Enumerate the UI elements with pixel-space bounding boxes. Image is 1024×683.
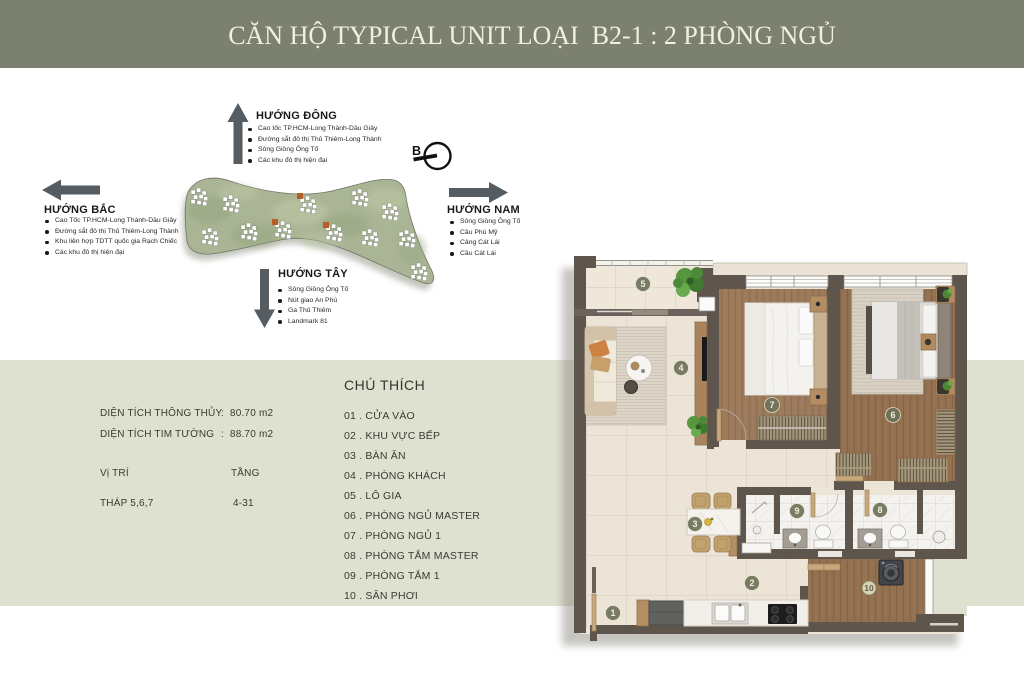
svg-text:7: 7	[769, 400, 774, 410]
svg-text:4: 4	[678, 363, 683, 373]
svg-text:6: 6	[890, 410, 895, 420]
svg-text:B: B	[412, 144, 421, 158]
svg-text:9: 9	[794, 506, 799, 516]
svg-text:2: 2	[749, 578, 754, 588]
svg-text:8: 8	[877, 505, 882, 515]
svg-text:10: 10	[864, 583, 874, 593]
svg-text:1: 1	[610, 608, 615, 618]
svg-text:5: 5	[640, 279, 645, 289]
svg-text:3: 3	[692, 519, 697, 529]
